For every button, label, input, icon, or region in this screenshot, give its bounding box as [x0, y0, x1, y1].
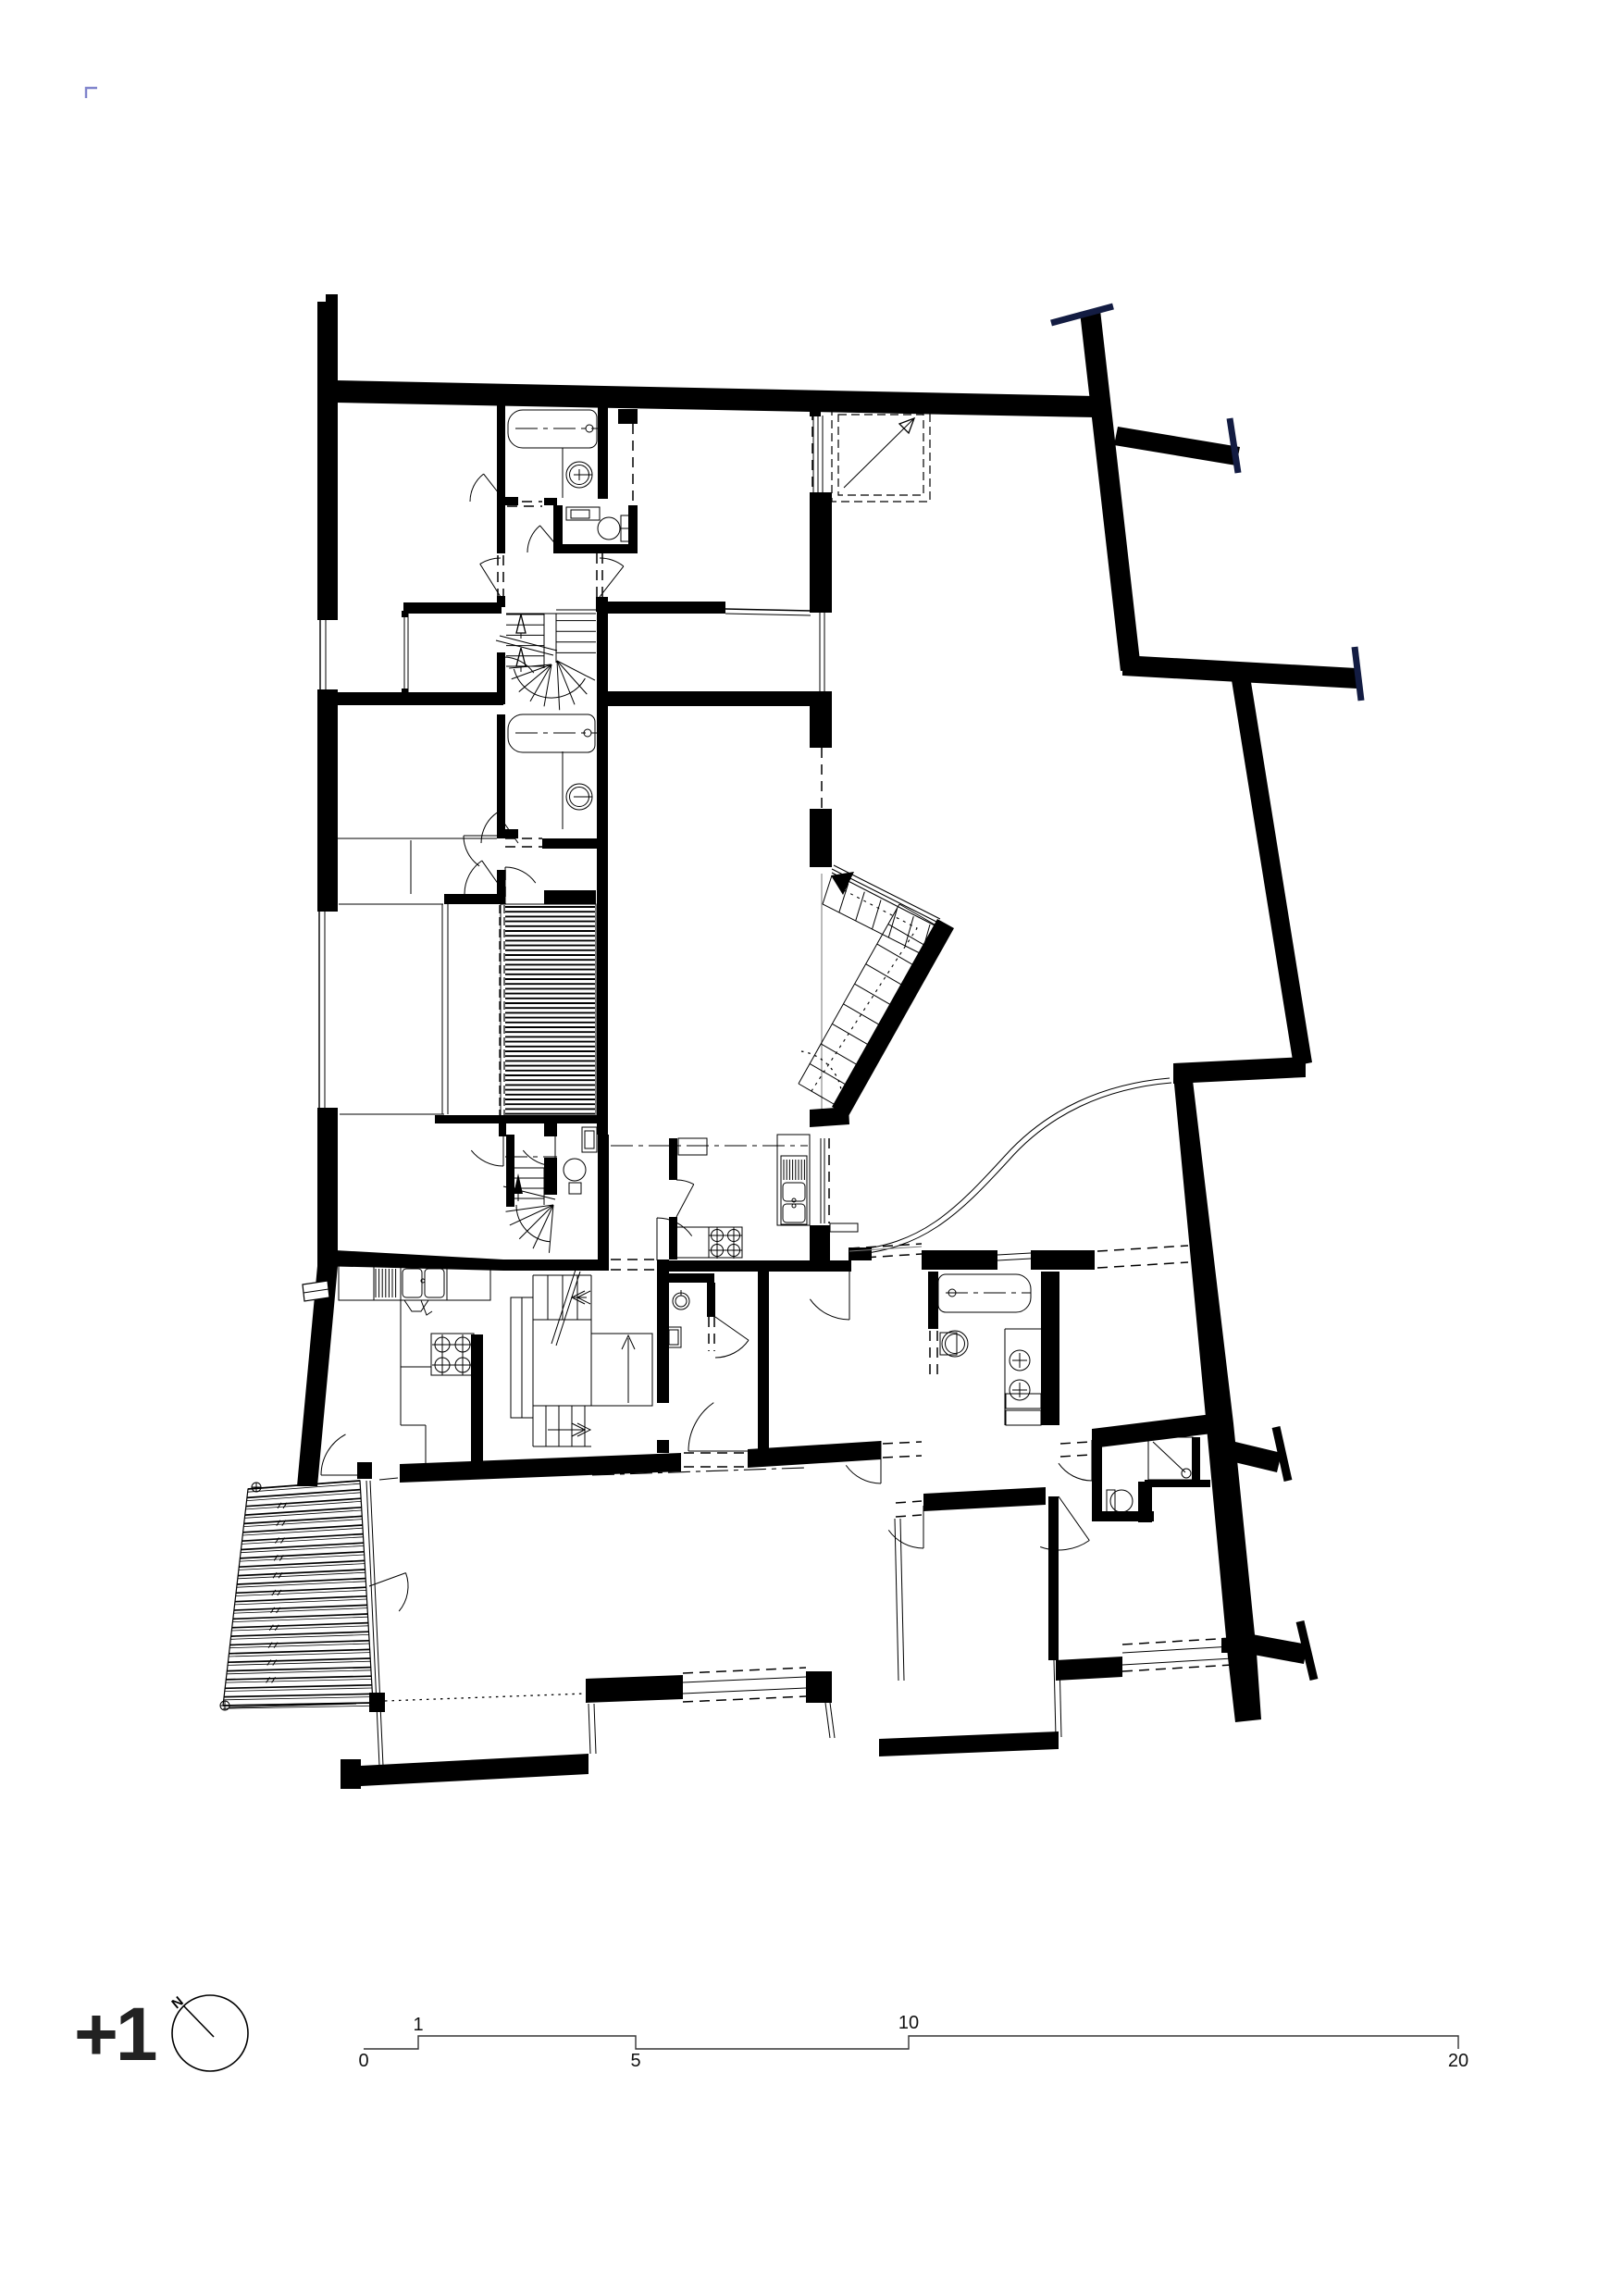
svg-text:0: 0	[358, 2051, 368, 2071]
svg-text:+1: +1	[74, 1992, 156, 2077]
svg-text:1: 1	[413, 2015, 423, 2035]
svg-text:20: 20	[1448, 2051, 1468, 2071]
svg-text:10: 10	[898, 2013, 919, 2033]
svg-text:5: 5	[630, 2051, 640, 2071]
svg-text:N: N	[168, 1993, 186, 2012]
